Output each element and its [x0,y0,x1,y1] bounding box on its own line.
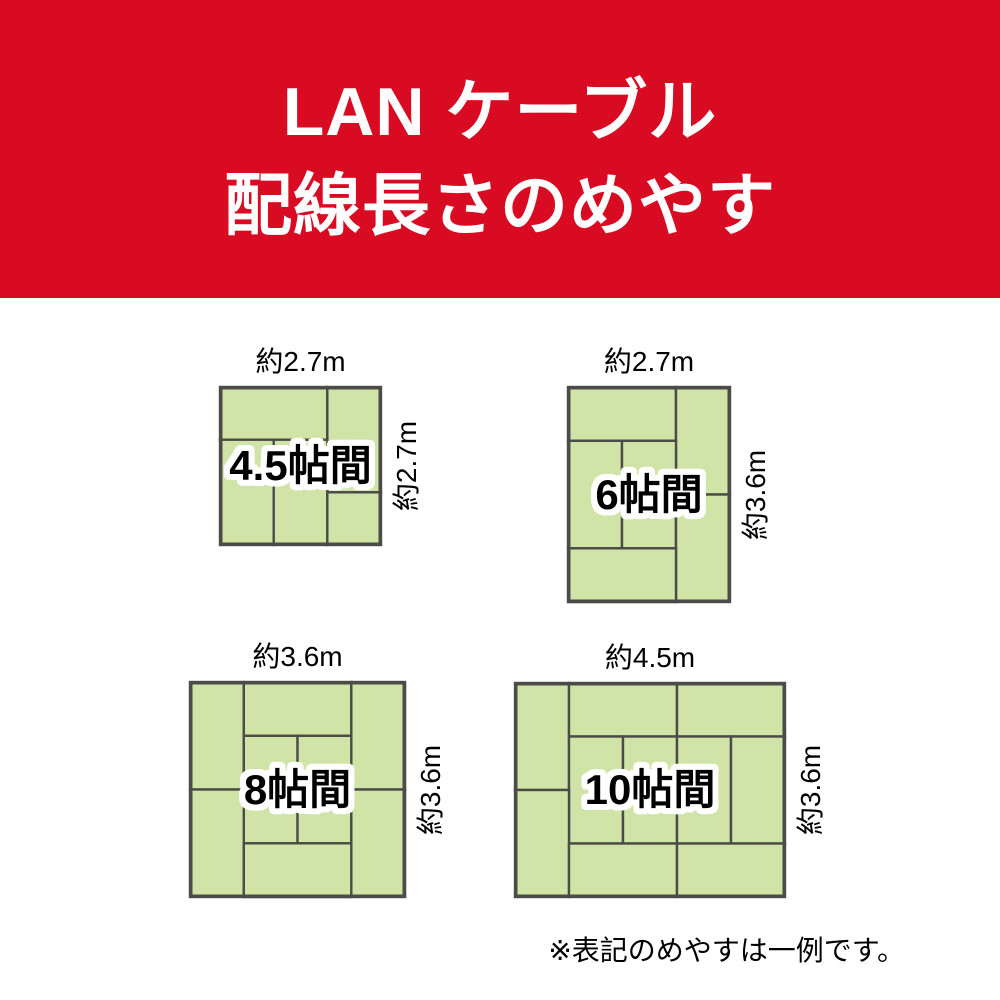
room-10-jo: 約4.5m 約3.6m 10帖間 [515,683,785,897]
room-width-label: 約2.7m [255,340,345,380]
header-banner: LAN ケーブル 配線長さのめやす [0,0,1000,298]
room-6-jo: 約2.7m 約3.6m 6帖間 [568,387,730,602]
room-height-label: 約3.6m [789,745,829,835]
room-height-label: 約3.6m [734,449,774,539]
footnote: ※表記のめやすは一例です。 [548,929,905,969]
room-size-label: 6帖間 [595,474,702,516]
room-height-label: 約3.6m [409,744,449,834]
room-8-jo: 約3.6m 約3.6m 8帖間 [190,682,405,897]
title-line-1: LAN ケーブル [0,78,1000,146]
room-size-label: 4.5帖間 [229,445,371,487]
room-4-5-jo: 約2.7m 約2.7m 4.5帖間 [220,387,381,545]
title-line-2: 配線長さのめやす [0,172,1000,240]
room-size-label: 8帖間 [244,769,351,811]
room-width-label: 約3.6m [252,635,342,675]
room-size-label: 10帖間 [585,769,716,811]
room-height-label: 約2.7m [385,421,425,511]
room-width-label: 約2.7m [604,340,694,380]
room-width-label: 約4.5m [605,636,695,676]
infographic: LAN ケーブル 配線長さのめやす 約2.7m 約2.7m 4.5帖間 約2.7… [0,0,1000,1000]
